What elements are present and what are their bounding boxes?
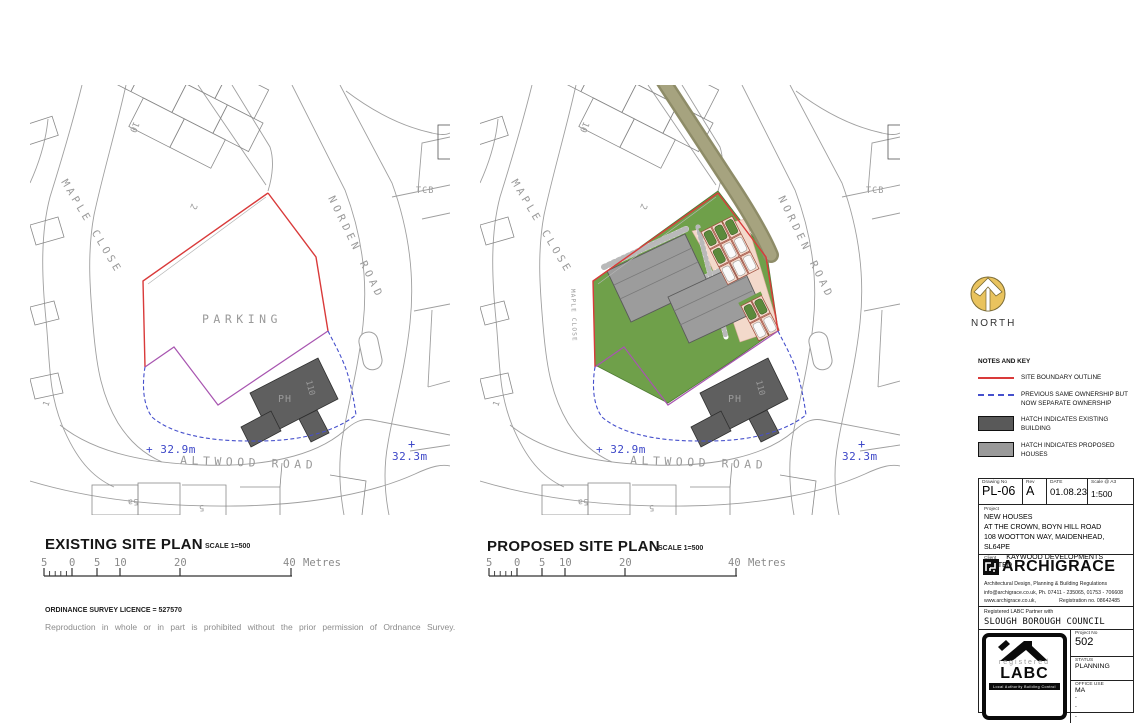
council-name: SLOUGH BOROUGH COUNCIL bbox=[984, 617, 1128, 627]
north-label: NORTH bbox=[971, 318, 1016, 329]
office-use-dash: - bbox=[1075, 694, 1129, 703]
project-line: 108 WOOTTON WAY, MAIDENHEAD, SL64PE bbox=[984, 532, 1128, 552]
drawing-info-row: Drawing No PL-06 Rev A DATE 01.08.23 Sca… bbox=[979, 479, 1133, 504]
firm-registration: Registration no. 08642485 bbox=[1059, 597, 1120, 606]
rev-value: A bbox=[1026, 485, 1043, 499]
labc-name-text: LABC bbox=[1000, 666, 1048, 682]
existing-plan-scale-note: SCALE 1=500 bbox=[205, 543, 250, 550]
existing-plan-title: EXISTING SITE PLAN bbox=[45, 536, 203, 553]
firm-contact-box: Architectural Design, Planning & Buildin… bbox=[979, 579, 1133, 606]
legend-label: HATCH INDICATES PROPOSED HOUSES bbox=[1014, 442, 1135, 460]
scale-unit: Metres bbox=[748, 557, 786, 569]
scale-tick: 40 bbox=[728, 557, 741, 569]
office-use-dash: - bbox=[1075, 703, 1129, 712]
legend-item-previous-ownership: PREVIOUS SAME OWNERSHIP BUT NOW SEPARATE… bbox=[978, 391, 1135, 409]
scale-tick: 0 bbox=[514, 557, 520, 569]
proposed-site-plan-map: MAPLE CLOSE bbox=[480, 85, 900, 515]
legend-item-proposed-houses: HATCH INDICATES PROPOSED HOUSES bbox=[978, 442, 1135, 460]
firm-tagline: Architectural Design, Planning & Buildin… bbox=[984, 580, 1128, 589]
legend-heading: NOTES AND KEY bbox=[978, 358, 1135, 365]
parking-label: PARKING bbox=[202, 312, 282, 326]
proposed-houses-swatch bbox=[978, 442, 1014, 457]
labc-roof-icon bbox=[996, 637, 1054, 661]
scale-tick: 40 bbox=[283, 557, 296, 569]
labc-strip-text: Local Authority Building Control bbox=[989, 683, 1060, 690]
proposed-plan-title: PROPOSED SITE PLAN bbox=[487, 538, 660, 555]
office-use-column: Project No 502 STATUS PLANNING OFFICE US… bbox=[1070, 630, 1133, 723]
labc-logo: registered LABC Local Authority Building… bbox=[982, 633, 1067, 720]
north-arrow-icon bbox=[963, 272, 1015, 318]
firm-website: www.archigrace.co.uk, bbox=[984, 597, 1036, 606]
status-value: PLANNING bbox=[1075, 663, 1129, 670]
road-label-maple-close-small: MAPLE CLOSE bbox=[569, 289, 578, 342]
legend-item-site-boundary: SITE BOUNDARY OUTLINE bbox=[978, 374, 1135, 383]
archigrace-logo-icon bbox=[983, 559, 999, 575]
scale-label: Scale @ A3 bbox=[1091, 480, 1130, 485]
scale-tick: 5 bbox=[94, 557, 100, 569]
drawing-no-value: PL-06 bbox=[982, 485, 1019, 499]
blue-dashed-line-key bbox=[978, 394, 1014, 396]
site-plan-drawing-sheet: { "existing_plan": { "title": "EXISTING … bbox=[0, 0, 1135, 720]
scale-tick: 0 bbox=[69, 557, 75, 569]
scale-unit: Metres bbox=[303, 557, 341, 569]
office-use-dash: - bbox=[1075, 713, 1129, 722]
scale-tick: 20 bbox=[174, 557, 187, 569]
legend-item-existing-building: HATCH INDICATES EXISTING BUILDING bbox=[978, 416, 1135, 434]
existing-site-plan-map: MAPLE CLOSE NORDEN ROAD ALTWOOD ROAD TCB… bbox=[30, 85, 450, 515]
os-licence: ORDINANCE SURVEY LICENCE = 527570 bbox=[45, 607, 182, 614]
project-line: NEW HOUSES bbox=[984, 512, 1128, 522]
project-box: Project NEW HOUSES AT THE CROWN, BOYN HI… bbox=[979, 504, 1133, 554]
scale-tick: 5 bbox=[486, 557, 492, 569]
legend-label: HATCH INDICATES EXISTING BUILDING bbox=[1014, 416, 1135, 434]
labc-office-row: registered LABC Local Authority Building… bbox=[979, 629, 1133, 723]
legend-label: SITE BOUNDARY OUTLINE bbox=[1014, 374, 1101, 383]
firm-name: ARCHIGRACE bbox=[1002, 558, 1115, 576]
title-block: Drawing No PL-06 Rev A DATE 01.08.23 Sca… bbox=[978, 478, 1134, 713]
firm-contact: info@archigrace.co.uk, Ph. 07411 - 23506… bbox=[984, 589, 1128, 598]
os-copyright-note: Reproduction in whole or in part is proh… bbox=[45, 622, 475, 632]
date-value: 01.08.23 bbox=[1050, 487, 1084, 499]
scale-tick: 5 bbox=[539, 557, 545, 569]
firm-logo-row: ARCHIGRACE bbox=[979, 554, 1133, 579]
existing-building-swatch bbox=[978, 416, 1014, 431]
date-label: DATE bbox=[1050, 480, 1084, 485]
scale-tick: 10 bbox=[559, 557, 572, 569]
scale-bar-proposed: 5 0 5 10 20 40 Metres bbox=[485, 556, 805, 584]
office-use-value: MA bbox=[1075, 687, 1129, 694]
proposed-plan-scale-note: SCALE 1=500 bbox=[658, 545, 703, 552]
legend-label: PREVIOUS SAME OWNERSHIP BUT NOW SEPARATE… bbox=[1014, 391, 1135, 409]
scale-tick: 5 bbox=[41, 557, 47, 569]
council-box: Registered LABC Partner with SLOUGH BORO… bbox=[979, 606, 1133, 629]
project-no-value: 502 bbox=[1075, 636, 1129, 648]
red-line-key bbox=[978, 377, 1014, 379]
labc-partner-note: Registered LABC Partner with bbox=[984, 609, 1128, 615]
project-line: AT THE CROWN, BOYN HILL ROAD bbox=[984, 522, 1128, 532]
scale-bar-existing: 5 0 5 10 20 40 Metres bbox=[40, 556, 360, 584]
scale-value: 1:500 bbox=[1091, 489, 1130, 499]
notes-and-key: NOTES AND KEY SITE BOUNDARY OUTLINE PREV… bbox=[978, 358, 1135, 468]
scale-tick: 20 bbox=[619, 557, 632, 569]
scale-tick: 10 bbox=[114, 557, 127, 569]
